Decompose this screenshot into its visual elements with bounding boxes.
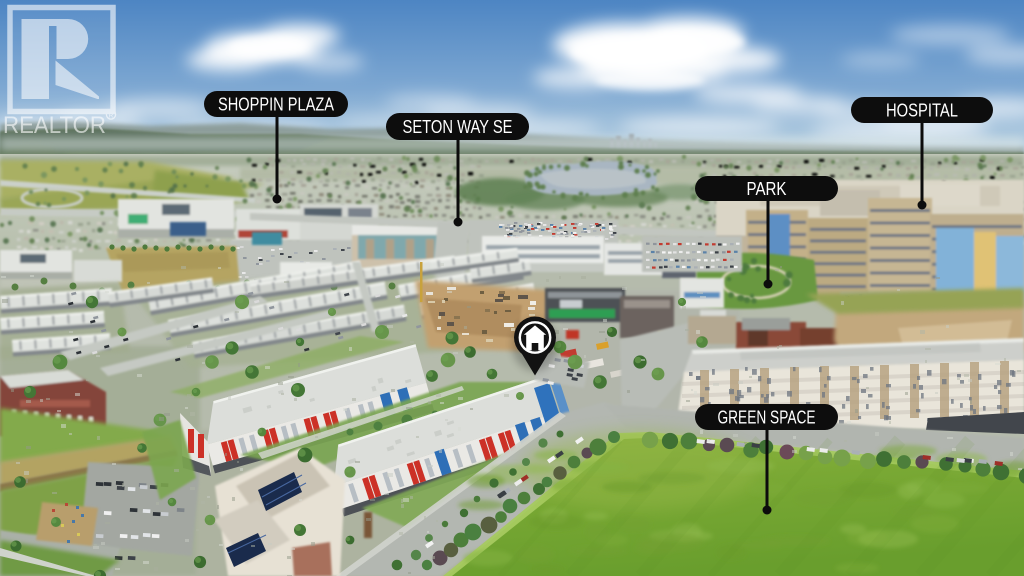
svg-text:GREEN SPACE: GREEN SPACE	[718, 407, 816, 428]
svg-text:REALTOR: REALTOR	[3, 112, 106, 139]
svg-text:SHOPPIN PLAZA: SHOPPIN PLAZA	[218, 94, 335, 115]
svg-text:PARK: PARK	[747, 178, 788, 199]
svg-text:SETON WAY SE: SETON WAY SE	[403, 116, 513, 137]
svg-text:HOSPITAL: HOSPITAL	[886, 100, 958, 121]
svg-text:R: R	[109, 113, 114, 120]
